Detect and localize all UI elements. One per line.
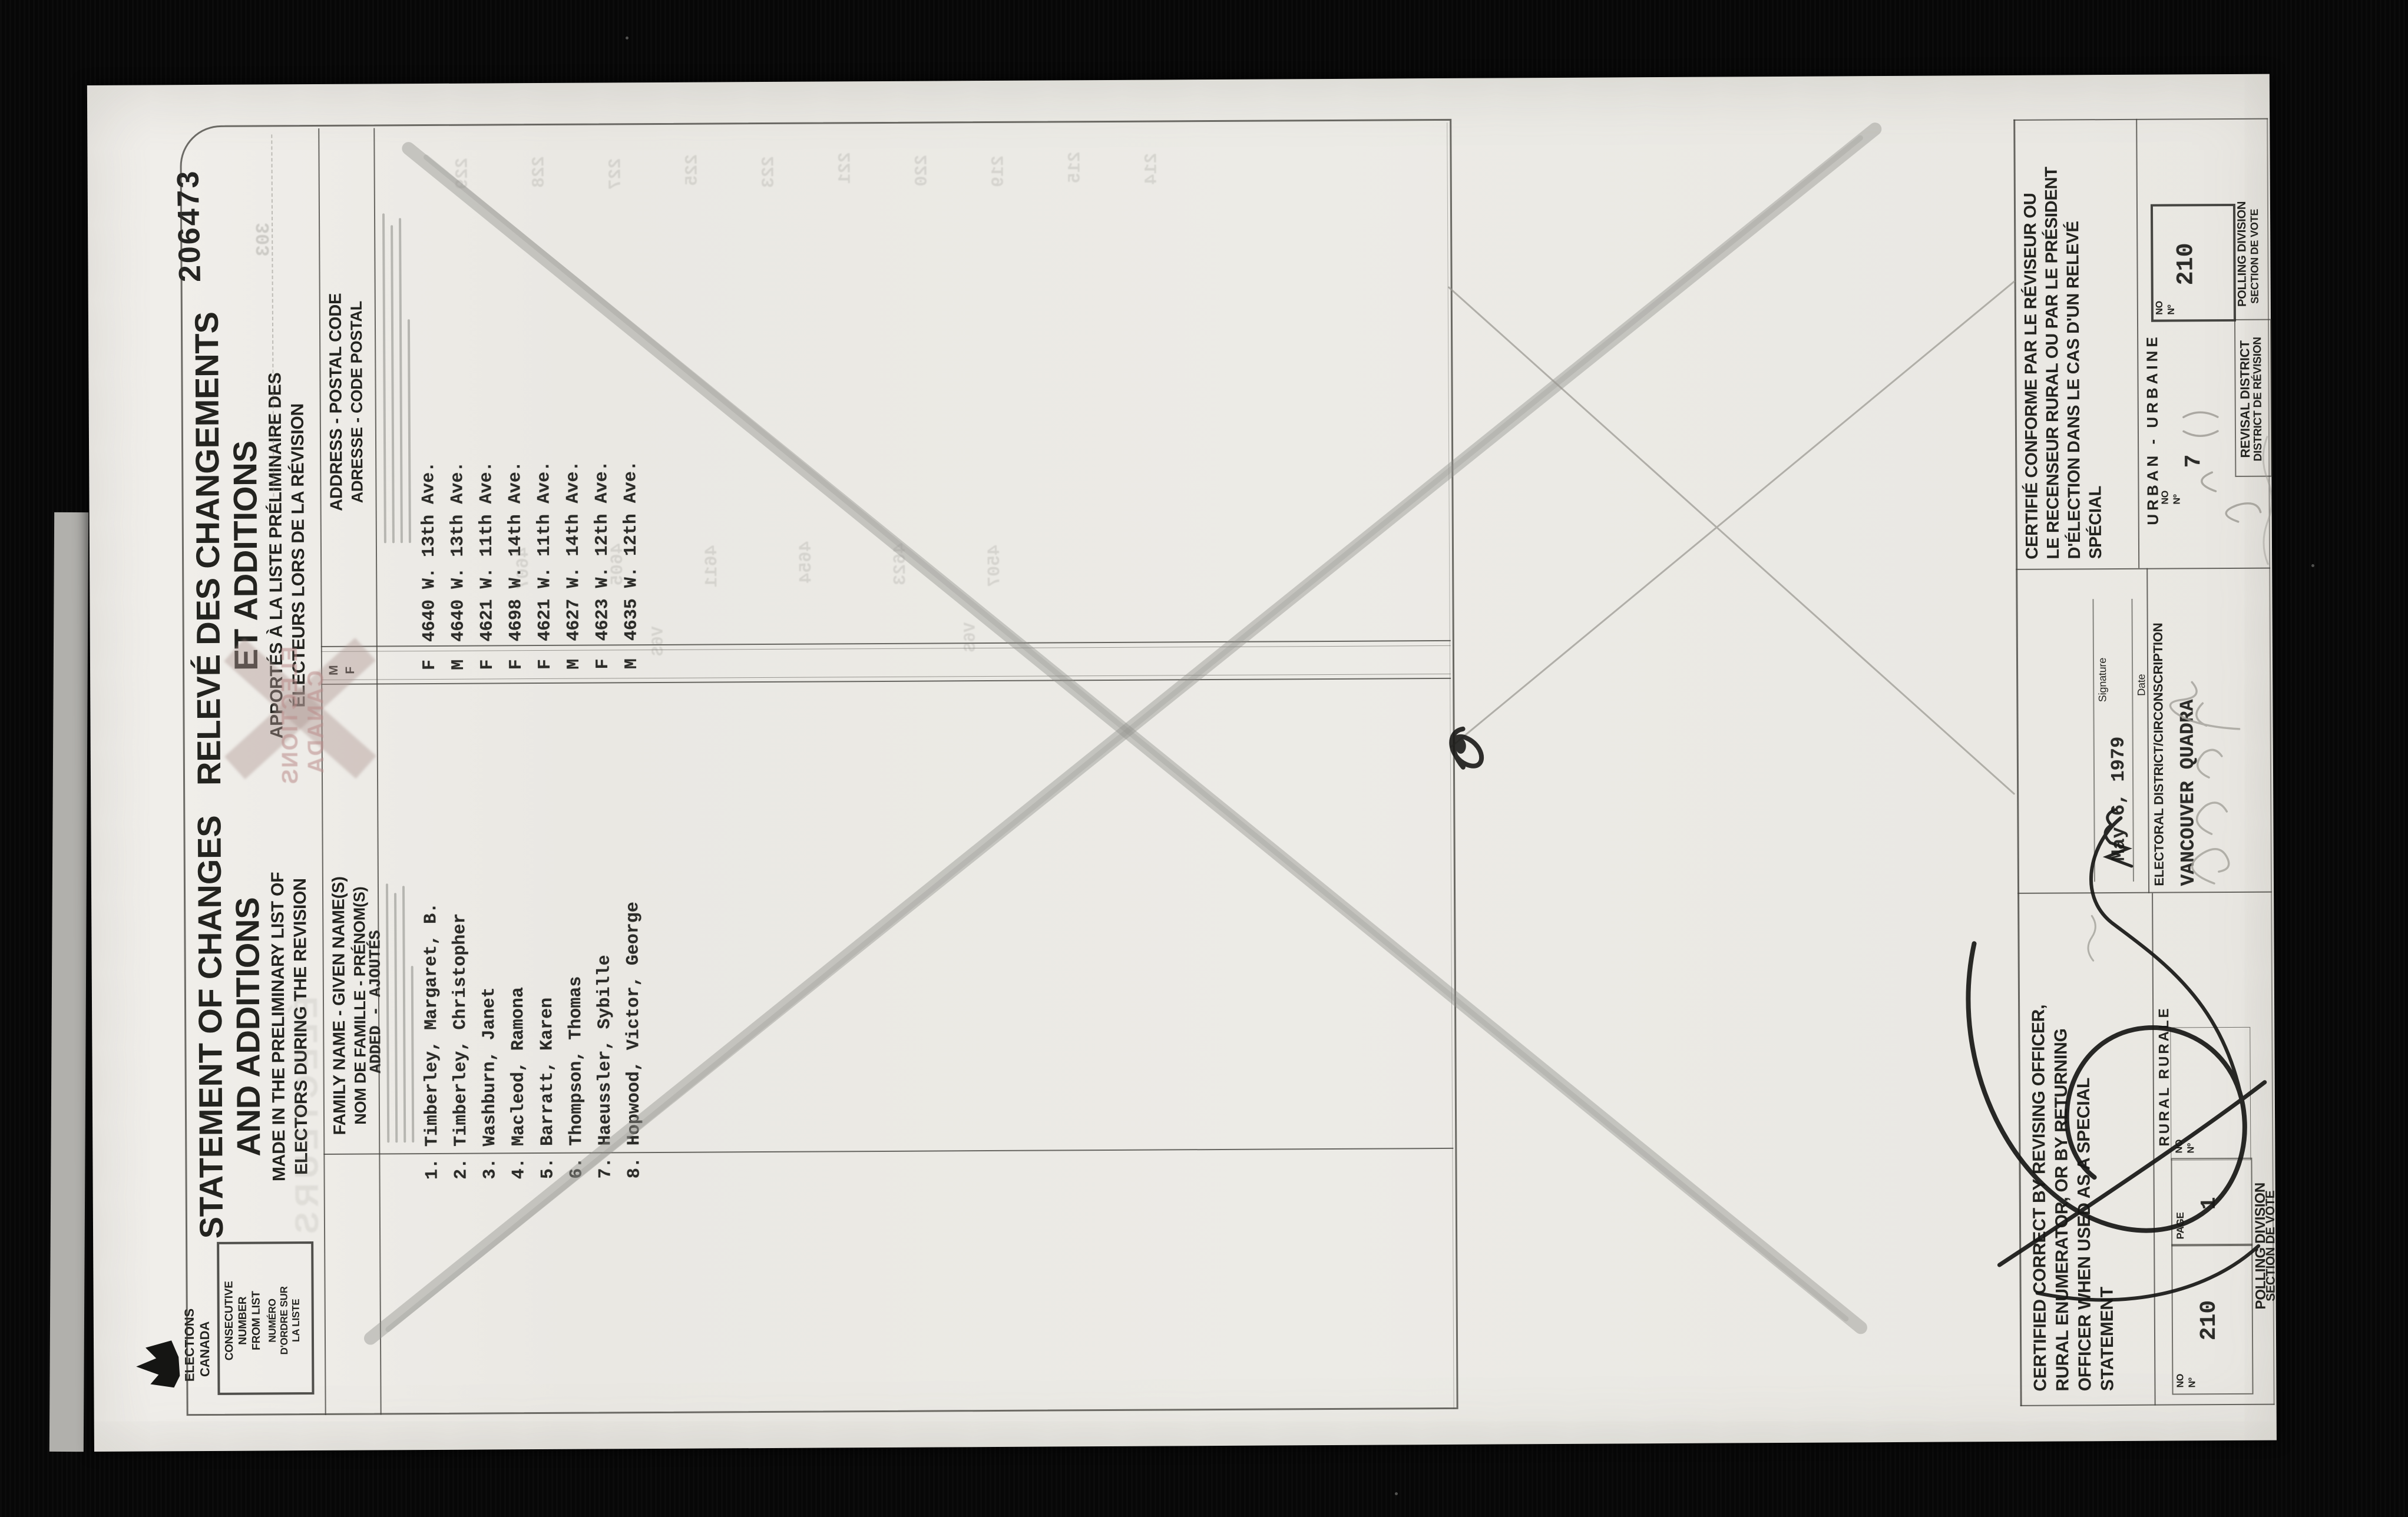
pencil-thin-x-mark bbox=[1449, 281, 2017, 797]
no-label: NO bbox=[2155, 301, 2165, 315]
consecutive-header-en: CONSECUTIVE bbox=[223, 1247, 236, 1395]
certification-en: OFFICER WHEN USED AS A SPECIAL bbox=[2074, 1078, 2096, 1392]
no-label: Nº bbox=[2187, 1377, 2198, 1387]
bleedthrough-text: 215 bbox=[1065, 151, 1085, 183]
row-name: Timberley, Margaret, B. bbox=[421, 903, 442, 1147]
bleedthrough-text: ÉLECTEURS bbox=[286, 996, 326, 1238]
page-value: 1 bbox=[2197, 1197, 2221, 1210]
date-line bbox=[2131, 599, 2134, 882]
pink-stamp-text: CANADA bbox=[303, 670, 329, 774]
bleedthrough-text: 4623 bbox=[891, 543, 911, 585]
row-address: 4621 W. 11th Ave. bbox=[477, 461, 498, 641]
urban-no-value: 210 bbox=[2173, 243, 2199, 285]
electoral-district-value: VANCOUVER QUADRA bbox=[2177, 699, 2199, 886]
bleedthrough-text: 223 bbox=[759, 156, 779, 188]
date-label: Date bbox=[2135, 674, 2148, 695]
address-column-header-en: ADDRESS - POSTAL CODE bbox=[326, 237, 347, 567]
row-number: 7. bbox=[596, 1157, 616, 1213]
row-number: 1. bbox=[422, 1158, 442, 1214]
page-label: PAGE bbox=[2175, 1212, 2187, 1239]
row-number: 3. bbox=[480, 1158, 500, 1214]
certification-en: CERTIFIED CORRECT BY REVISING OFFICER, bbox=[2029, 1005, 2050, 1392]
consecutive-header-fr: NUMÉRO bbox=[266, 1246, 279, 1395]
bottom-strip-top-rule bbox=[2013, 120, 2022, 1406]
bleedthrough-text: 225 bbox=[682, 154, 702, 186]
row-name: Hopwood, Victor, George bbox=[623, 902, 644, 1145]
scan-speck bbox=[2311, 564, 2314, 567]
signature-label: Signature bbox=[2096, 658, 2109, 702]
elections-canada-logo-flag bbox=[133, 1336, 182, 1392]
polling-division-label: SECTION DE VOTE bbox=[2263, 1140, 2278, 1352]
row-sex: F bbox=[420, 645, 440, 684]
district-box-rule bbox=[2146, 568, 2149, 893]
bleedthrough-text: 4654 bbox=[796, 541, 816, 584]
bleedthrough-text: 4607 bbox=[514, 547, 534, 589]
cert-divider-rule bbox=[2016, 568, 2270, 570]
rural-section-rule bbox=[2152, 893, 2156, 1406]
scanned-form: ELECTIONS CANADA 206473 STATEMENT OF CHA… bbox=[87, 74, 2277, 1452]
row-number: 8. bbox=[624, 1157, 644, 1213]
row-number: 4. bbox=[509, 1158, 529, 1214]
no-label: NO bbox=[2175, 1374, 2186, 1388]
row-name: Macleod, Ramona bbox=[508, 987, 529, 1146]
row-address: 4627 W. 14th Ave. bbox=[563, 461, 584, 641]
certification-fr: LE RECENSEUR RURAL OU PAR LE PRÉSIDENT bbox=[2042, 167, 2063, 559]
row-name: Timberley, Christopher bbox=[450, 913, 471, 1147]
revisal-no-value: 7 bbox=[2181, 454, 2207, 468]
urban-section-rule bbox=[2136, 119, 2139, 568]
bleedthrough-text: V6S bbox=[962, 622, 980, 652]
pink-stamp-text: ELECTIONS bbox=[277, 647, 303, 786]
rural-no-value: 210 bbox=[2197, 1300, 2222, 1341]
row-sex: F bbox=[478, 645, 498, 684]
revisal-district-label: DISTRICT DE RÉVISION bbox=[2251, 322, 2265, 477]
bottom-strip-right-rule bbox=[2013, 118, 2268, 121]
no-label: NO bbox=[2161, 491, 2171, 505]
no-label: Nº bbox=[2166, 304, 2177, 314]
bleedthrough-text: 219 bbox=[988, 155, 1008, 187]
no-label: Nº bbox=[2172, 494, 2183, 504]
row-sex: F bbox=[593, 644, 613, 683]
bleedthrough-text: 4507 bbox=[985, 545, 1005, 587]
bleedthrough-text: 228 bbox=[529, 156, 549, 188]
row-name: Thompson, Thomas bbox=[566, 976, 587, 1146]
bottom-strip-left-rule bbox=[2020, 1404, 2275, 1406]
electoral-district-label: ELECTORAL DISTRICT/CIRCONSCRIPTION bbox=[2151, 622, 2167, 886]
address-column-header-fr: ADRESSE - CODE POSTAL bbox=[347, 237, 367, 567]
certification-fr: D'ÉLECTION DANS LE CAS D'UN RELEVÉ bbox=[2063, 221, 2085, 559]
polling-division-label: SECTION DE VOTE bbox=[2248, 209, 2261, 304]
bleedthrough-text: 221 bbox=[835, 152, 855, 184]
certification-en: RURAL ENUMERATOR, OR BY RETURNING bbox=[2051, 1028, 2073, 1391]
row-number: 6. bbox=[567, 1158, 587, 1214]
signature-line bbox=[2092, 599, 2095, 882]
row-sex: F bbox=[535, 645, 555, 684]
under-sheet-edge bbox=[49, 512, 88, 1452]
added-section-label: ADDED - AJOUTÉS bbox=[367, 930, 385, 1073]
row-sex: M bbox=[622, 644, 642, 683]
certification-fr: CERTIFIÉ CONFORME PAR LE RÉVISEUR OU bbox=[2021, 193, 2042, 559]
consecutive-header-en: FROM LIST bbox=[250, 1246, 263, 1395]
row-name: Washburn, Janet bbox=[479, 987, 500, 1146]
table-outline bbox=[180, 119, 1458, 1416]
row-sex: M bbox=[449, 645, 469, 684]
polling-division-label: POLLING DIVISION bbox=[2235, 201, 2250, 307]
consecutive-header-en: NUMBER bbox=[236, 1247, 250, 1395]
row-sex: F bbox=[507, 645, 527, 684]
scanner-background: ELECTIONS CANADA 206473 STATEMENT OF CHA… bbox=[0, 0, 2408, 1517]
certification-en: STATEMENT bbox=[2098, 1287, 2118, 1391]
cert-divider-rule bbox=[2017, 892, 2272, 894]
row-name: Barratt, Karen bbox=[537, 998, 558, 1146]
no-label: NO bbox=[2174, 1140, 2185, 1154]
bleedthrough-text: 227 bbox=[606, 158, 626, 190]
row-number: 5. bbox=[538, 1158, 558, 1214]
consecutive-header-fr: LA LISTE bbox=[290, 1246, 302, 1395]
no-label: Nº bbox=[2186, 1143, 2197, 1153]
row-number: 2. bbox=[451, 1158, 471, 1214]
row-address: 4640 W. 13th Ave. bbox=[419, 462, 440, 642]
certification-fr: SPÉCIAL bbox=[2086, 486, 2106, 559]
ink-scribble bbox=[1451, 729, 1481, 767]
bleedthrough-text: 214 bbox=[1142, 153, 1162, 184]
date-value: May 6, 1979 bbox=[2108, 737, 2130, 861]
row-name: Haeussler, Sybille bbox=[595, 955, 616, 1145]
bleedthrough-text: 229 bbox=[453, 158, 473, 190]
row-address: 4621 W. 11th Ave. bbox=[534, 461, 555, 641]
bleedthrough-text: 220 bbox=[912, 155, 932, 187]
bleedthrough-text: 4611 bbox=[702, 545, 722, 587]
row-address: 4640 W. 13th Ave. bbox=[448, 462, 469, 642]
consecutive-header-fr: D'ORDRE SUR bbox=[278, 1246, 290, 1395]
urban-label: URBAN - URBAINE bbox=[2143, 333, 2162, 525]
name-column-header-en: FAMILY NAME - GIVEN NAME(S) bbox=[329, 865, 350, 1147]
row-sex: M bbox=[564, 645, 584, 684]
bleedthrough-text: 4605 bbox=[608, 543, 628, 585]
fine-print-illegible bbox=[87, 85, 94, 1452]
bleedthrough-text: V6S bbox=[650, 626, 668, 656]
scan-speck bbox=[1395, 1492, 1398, 1495]
scan-speck bbox=[626, 37, 629, 39]
